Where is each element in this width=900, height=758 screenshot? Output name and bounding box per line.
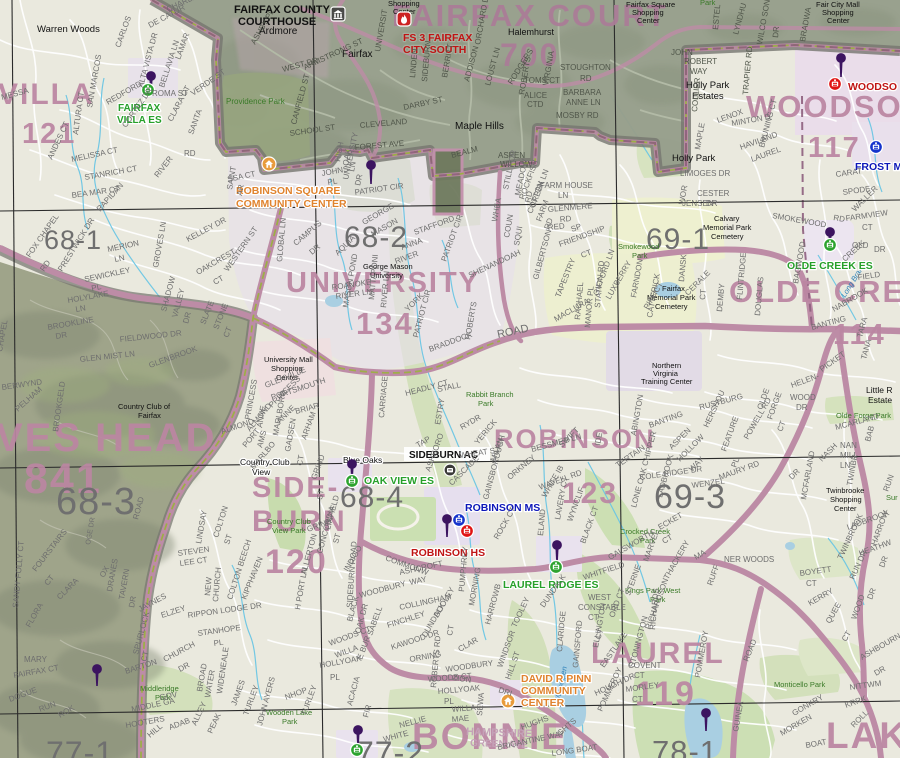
- svg-text:ROBERT: ROBERT: [684, 57, 717, 66]
- svg-text:77-1: 77-1: [46, 735, 114, 758]
- svg-text:FAIRFAX COUNTY: FAIRFAX COUNTY: [234, 4, 331, 16]
- svg-text:Center: Center: [827, 16, 850, 25]
- svg-text:TOMS CT: TOMS CT: [524, 76, 560, 85]
- svg-text:Halemhurst: Halemhurst: [508, 27, 555, 37]
- svg-text:Little R: Little R: [866, 385, 892, 395]
- svg-text:Training Center: Training Center: [641, 377, 693, 386]
- svg-text:LN: LN: [75, 303, 87, 314]
- svg-text:CT: CT: [632, 695, 643, 704]
- svg-text:ANNE LN: ANNE LN: [566, 98, 601, 107]
- svg-text:Fairfax: Fairfax: [138, 411, 161, 420]
- svg-text:FARM HOUSE: FARM HOUSE: [540, 181, 593, 190]
- svg-text:ROBINSON HS: ROBINSON HS: [411, 547, 485, 559]
- svg-text:134: 134: [356, 306, 414, 341]
- svg-text:LN: LN: [558, 191, 568, 200]
- svg-text:FS 3 FAIRFAX: FS 3 FAIRFAX: [403, 32, 472, 44]
- svg-text:69-1: 69-1: [646, 223, 710, 256]
- svg-text:CT: CT: [698, 289, 708, 301]
- svg-text:ROBINSON SQUARE: ROBINSON SQUARE: [236, 185, 340, 197]
- svg-text:CT: CT: [862, 223, 873, 232]
- svg-text:Smokewood: Smokewood: [618, 242, 659, 251]
- svg-text:MAE: MAE: [451, 714, 469, 724]
- svg-text:ALICE: ALICE: [524, 91, 547, 100]
- svg-text:Center: Center: [637, 16, 660, 25]
- svg-text:ROBINSON MS: ROBINSON MS: [465, 502, 540, 514]
- svg-text:NER WOODS: NER WOODS: [724, 555, 774, 564]
- svg-text:MOSBY RD: MOSBY RD: [556, 111, 599, 120]
- svg-text:Cemetery: Cemetery: [711, 232, 744, 241]
- svg-text:WAY: WAY: [690, 67, 708, 76]
- svg-text:Country Club: Country Club: [267, 517, 311, 526]
- svg-text:PL: PL: [444, 697, 454, 706]
- svg-text:ST: ST: [315, 489, 326, 501]
- svg-text:University Mall: University Mall: [264, 355, 313, 364]
- svg-text:Sur: Sur: [886, 493, 898, 502]
- svg-text:CT: CT: [295, 454, 306, 466]
- svg-text:Park: Park: [282, 717, 298, 726]
- svg-text:Monticello Park: Monticello Park: [774, 680, 826, 689]
- svg-text:117: 117: [808, 132, 861, 164]
- svg-text:BARBARA: BARBARA: [563, 88, 602, 97]
- svg-text:DR: DR: [796, 403, 808, 412]
- svg-text:Fairfax: Fairfax: [662, 284, 685, 293]
- svg-text:Memorial Park: Memorial Park: [703, 223, 752, 232]
- svg-text:121: 121: [22, 118, 76, 150]
- svg-text:MARY: MARY: [24, 655, 48, 664]
- svg-text:DR: DR: [874, 245, 886, 254]
- svg-text:PL: PL: [330, 673, 340, 682]
- svg-text:Holly Park: Holly Park: [672, 153, 716, 164]
- svg-text:CT: CT: [445, 624, 456, 636]
- svg-text:Rabbit Branch: Rabbit Branch: [466, 390, 514, 399]
- svg-text:Park: Park: [478, 399, 494, 408]
- svg-text:RD: RD: [580, 74, 592, 83]
- svg-text:DAVID R PINN: DAVID R PINN: [521, 673, 591, 685]
- svg-text:119: 119: [635, 675, 696, 713]
- svg-text:Providence Park: Providence Park: [226, 97, 286, 106]
- svg-text:Country Club of: Country Club of: [118, 402, 171, 411]
- svg-text:OAK VIEW ES: OAK VIEW ES: [364, 475, 434, 487]
- svg-text:COMMUNITY CENTER: COMMUNITY CENTER: [236, 198, 347, 210]
- svg-text:JENSEN: JENSEN: [682, 199, 714, 208]
- svg-text:Estate: Estate: [868, 395, 892, 405]
- svg-text:STOUGHTON: STOUGHTON: [560, 63, 611, 72]
- svg-text:Park: Park: [632, 251, 648, 260]
- svg-text:CENTER: CENTER: [521, 697, 565, 709]
- svg-text:68-3: 68-3: [56, 481, 136, 523]
- svg-text:COMMUNITY: COMMUNITY: [521, 685, 586, 697]
- svg-text:LIMOGES DR: LIMOGES DR: [680, 169, 730, 178]
- svg-text:WOOD: WOOD: [790, 393, 816, 402]
- svg-text:Warren Woods: Warren Woods: [37, 24, 100, 35]
- svg-text:CESTER: CESTER: [697, 189, 730, 198]
- svg-text:DR: DR: [771, 26, 781, 39]
- svg-text:Twinbrooke: Twinbrooke: [826, 486, 864, 495]
- svg-text:PL: PL: [213, 638, 224, 648]
- svg-text:WOODSO: WOODSO: [848, 81, 897, 93]
- svg-text:NAN: NAN: [840, 441, 857, 450]
- svg-text:RD: RD: [184, 149, 196, 158]
- svg-text:CT: CT: [806, 579, 817, 588]
- svg-text:Center: Center: [834, 504, 857, 513]
- svg-text:Cemetery: Cemetery: [655, 302, 688, 311]
- svg-text:Shopping: Shopping: [830, 495, 862, 504]
- svg-text:VES HEAD: VES HEAD: [0, 416, 217, 460]
- svg-text:WEST: WEST: [588, 593, 611, 602]
- svg-text:78-1: 78-1: [652, 734, 718, 758]
- svg-text:JOHN: JOHN: [671, 48, 693, 57]
- svg-text:LN: LN: [347, 160, 358, 172]
- svg-text:Calvary: Calvary: [714, 214, 740, 223]
- svg-text:Maple Hills: Maple Hills: [455, 121, 504, 132]
- svg-text:View Park: View Park: [272, 526, 306, 535]
- svg-text:CTD: CTD: [527, 100, 544, 109]
